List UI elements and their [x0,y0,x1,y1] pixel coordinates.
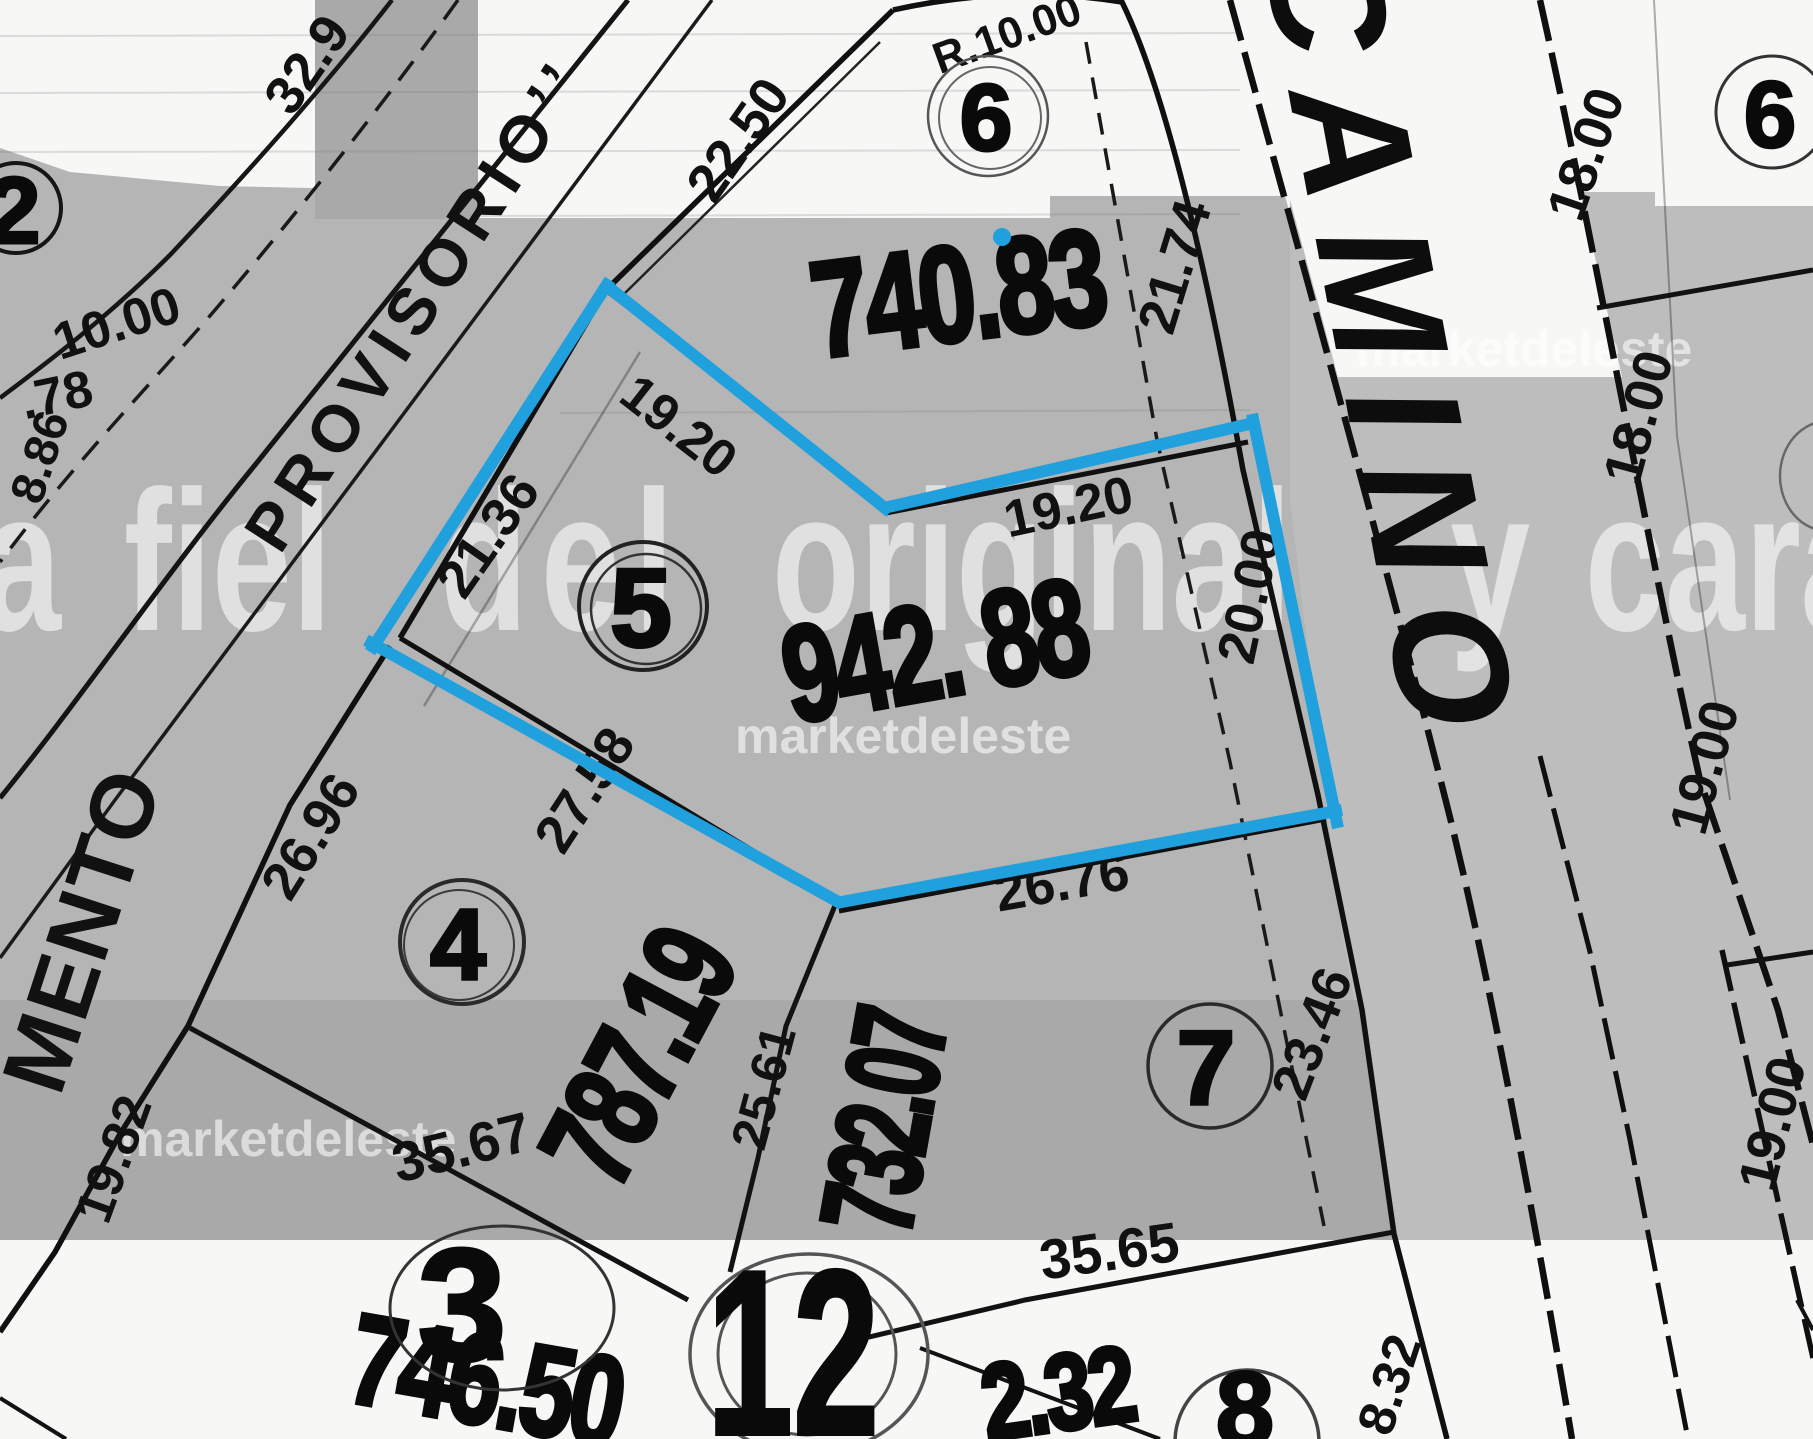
svg-text:4: 4 [430,889,486,1001]
svg-text:8: 8 [1216,1351,1274,1439]
svg-text:12: 12 [707,1223,880,1439]
svg-text:3: 3 [418,1215,507,1394]
svg-text:2.32: 2.32 [974,1323,1142,1439]
svg-text:6: 6 [1744,62,1797,168]
svg-text:7: 7 [1177,1010,1235,1127]
svg-text:5: 5 [610,547,671,670]
svg-text:2: 2 [0,158,40,264]
svg-text:6: 6 [960,65,1013,171]
